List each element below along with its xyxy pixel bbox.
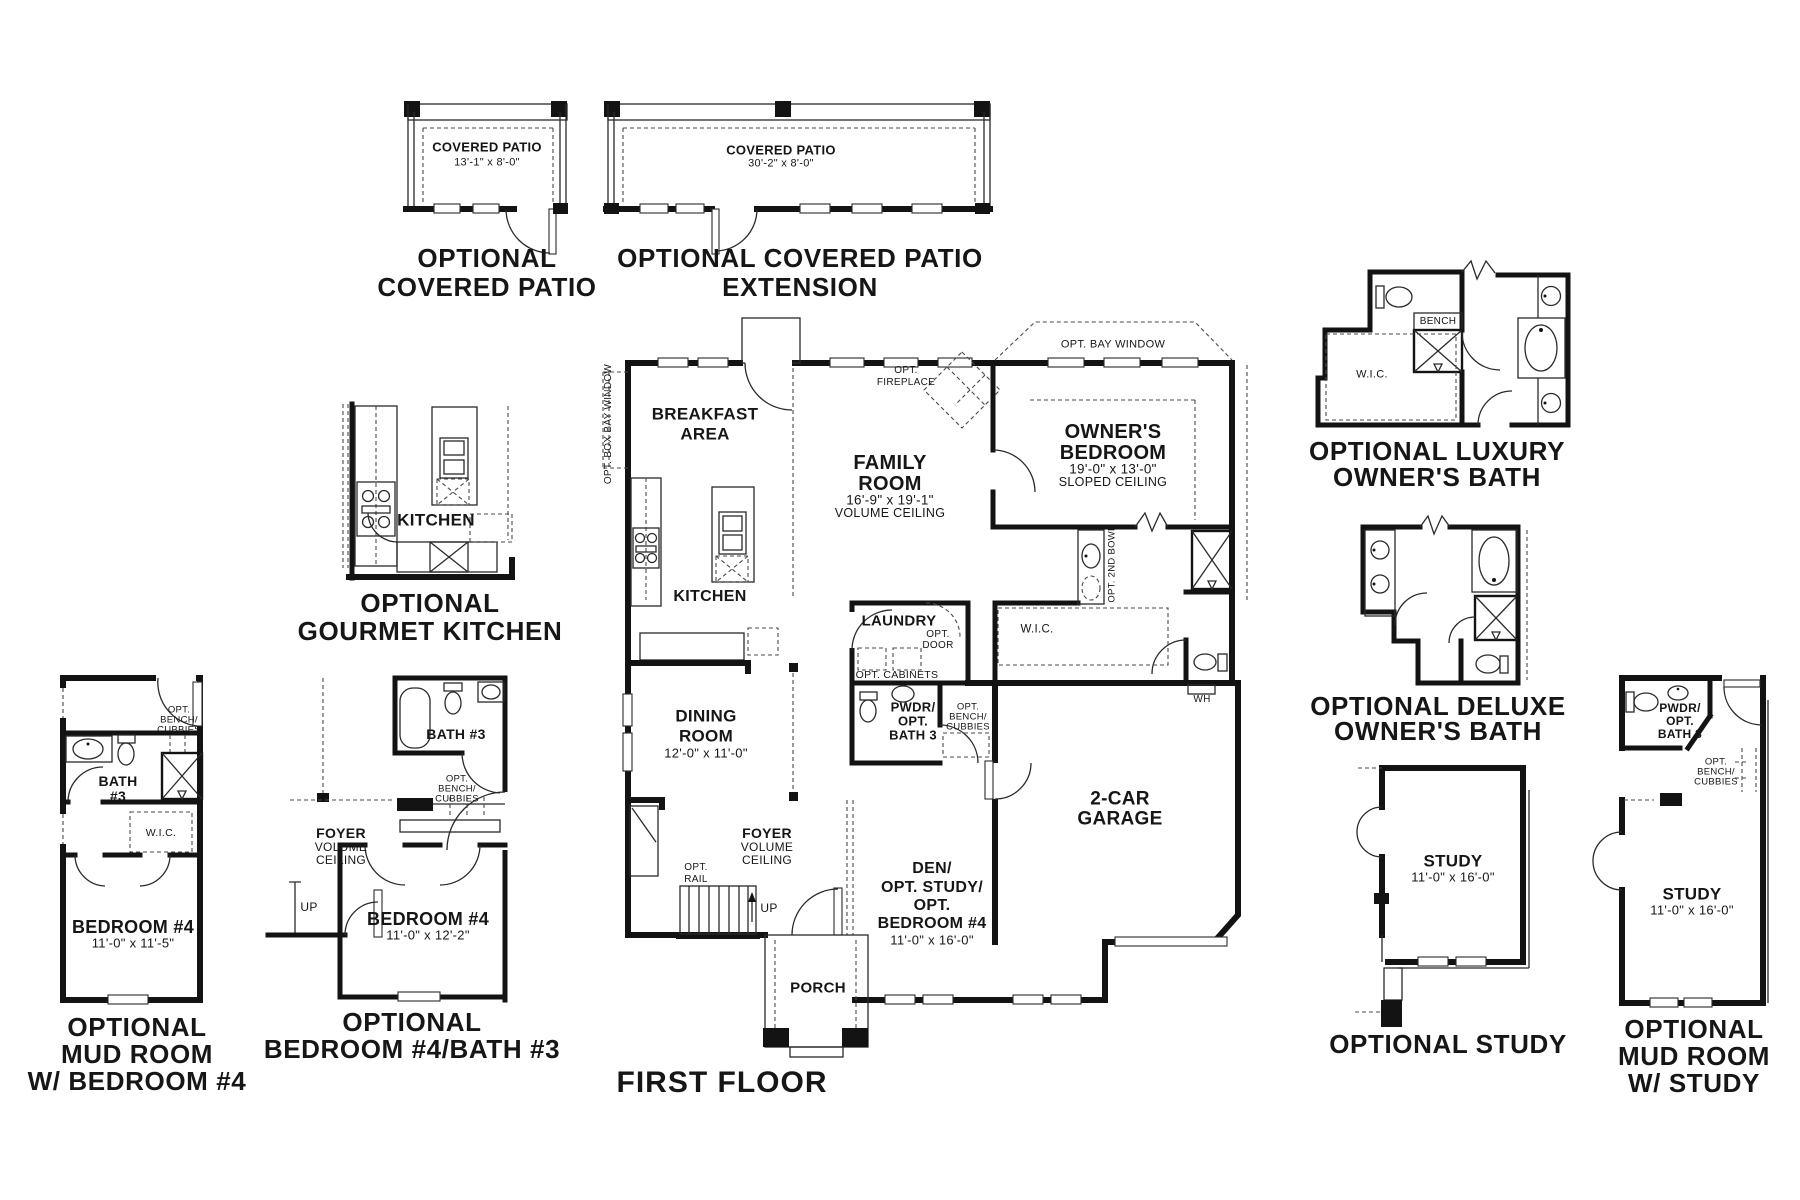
- mudbed4-wic: W.I.C.: [146, 828, 176, 839]
- main-pwdr-2: OPT.: [898, 715, 928, 728]
- main-pwdr-3: BATH 3: [889, 729, 937, 742]
- bed4bath3-bench-3: CUBBIES: [435, 794, 479, 804]
- caption-luxury-1: OPTIONAL LUXURY: [1309, 438, 1565, 464]
- floorplan-sheet: COVERED PATIO 13'-1" x 8'-0" OPTIONAL CO…: [0, 0, 1800, 1200]
- sink-icon: [1668, 686, 1688, 700]
- caption-bed4bath3-1: OPTIONAL: [342, 1009, 481, 1035]
- main-opt-rail-2: RAIL: [684, 875, 707, 885]
- main-garage-2: GARAGE: [1077, 810, 1162, 829]
- bed4bath3-up: UP: [300, 901, 317, 913]
- sink-icon: [478, 682, 504, 702]
- water-heater-icon: [1188, 685, 1215, 694]
- vanity-sink-icon: [1365, 530, 1395, 616]
- optional-covered-patio-plan: [404, 101, 568, 254]
- gourmet-kitchen-label: KITCHEN: [397, 512, 475, 529]
- covered-patio-dim: 13'-1" x 8'-0": [454, 158, 520, 169]
- bed4bath3-foyer-1: FOYER: [316, 826, 366, 840]
- main-foyer-2: VOLUME: [741, 841, 793, 853]
- caption-gourmet-2: GOURMET KITCHEN: [298, 618, 563, 644]
- bed4bath3-bedroom: BEDROOM #4: [367, 910, 489, 928]
- caption-gourmet-1: OPTIONAL: [360, 590, 499, 616]
- door-arc-icon: [745, 363, 792, 410]
- door-leaf-icon: [985, 761, 993, 799]
- main-owner-1: OWNER'S: [1065, 422, 1162, 442]
- toilet-icon: [1626, 692, 1658, 712]
- caption-patio-1: OPTIONAL: [417, 245, 556, 271]
- main-opt-cabinets: OPT. CABINETS: [856, 670, 939, 681]
- wall-break-icon: [1420, 516, 1450, 534]
- bed4bath3-bath: BATH #3: [426, 727, 485, 741]
- main-den-dim: 11'-0" x 16'-0": [890, 934, 974, 947]
- tub-icon: [1472, 530, 1517, 592]
- vanity-sink-icon: [1078, 530, 1104, 604]
- double-door-icon: [1135, 513, 1168, 531]
- mudbed4-bath-2: #3: [110, 789, 126, 803]
- caption-mudbed4-1: OPTIONAL: [67, 1014, 206, 1040]
- luxury-bench: BENCH: [1420, 317, 1457, 327]
- caption-mudstudy-2: MUD ROOM: [1618, 1043, 1770, 1069]
- shower-icon: [1192, 531, 1232, 589]
- main-den-4: BEDROOM #4: [878, 916, 987, 932]
- main-opt-door-2: DOOR: [922, 641, 953, 651]
- mudstudy-bench-3: CUBBIES: [1694, 777, 1738, 787]
- door-arc-icon: [1462, 332, 1500, 370]
- main-dining-dim: 12'-0" x 11'-0": [664, 747, 748, 760]
- stair-rail-icon: [289, 882, 301, 935]
- optional-study-plan: [1355, 768, 1529, 1027]
- caption-deluxe-2: OWNER'S BATH: [1334, 718, 1542, 744]
- caption-patio-2: COVERED PATIO: [377, 274, 596, 300]
- main-pwdr-1: PWDR/: [891, 701, 936, 714]
- mudbed4-dim: 11'-0" x 11'-5": [92, 937, 175, 950]
- shower-icon: [1414, 330, 1462, 372]
- sink-icon: [1542, 287, 1561, 413]
- main-bench-3: CUBBIES: [946, 722, 990, 732]
- main-breakfast-1: BREAKFAST: [652, 406, 759, 423]
- door-arc-icon: [1478, 391, 1512, 425]
- main-fireplace-2: FIREPLACE: [877, 378, 935, 388]
- tub-icon: [1518, 318, 1565, 378]
- caption-luxury-2: OWNER'S BATH: [1333, 464, 1541, 490]
- bed4bath3-foyer-2: VOLUME: [315, 841, 367, 853]
- wall-break-icon: [1462, 261, 1495, 279]
- mudstudy-pwdr-3: BATH 3: [1658, 728, 1702, 740]
- door-arc-icon: [440, 845, 480, 885]
- main-fireplace-1: OPT.: [894, 366, 917, 376]
- luxury-wic: W.I.C.: [1356, 370, 1388, 381]
- island-double-oven-icon: [432, 407, 477, 505]
- door-arc-icon: [1395, 593, 1427, 625]
- door-arc-icon: [995, 763, 1031, 799]
- door-arc-icon: [1724, 687, 1762, 725]
- door-leaf-icon: [834, 888, 842, 935]
- caption-mudstudy-1: OPTIONAL: [1624, 1016, 1763, 1042]
- main-foyer-3: CEILING: [742, 854, 792, 866]
- main-family-note: VOLUME CEILING: [835, 507, 945, 520]
- mudstudy-dim: 11'-0" x 16'-0": [1650, 904, 1734, 917]
- optional-covered-patio-extension-plan: [604, 101, 990, 254]
- caption-mudbed4-2: MUD ROOM: [61, 1041, 213, 1067]
- mudbed4-bath-1: BATH: [98, 774, 137, 788]
- sink-icon: [430, 542, 468, 572]
- garage-door-icon: [1115, 937, 1227, 946]
- shower-icon: [1475, 596, 1517, 640]
- main-family-dim: 16'-9" x 19'-1": [846, 493, 934, 507]
- door-arc-icon: [1357, 807, 1382, 857]
- patio-ext-label: COVERED PATIO: [726, 144, 836, 157]
- main-bay-window: OPT. BAY WINDOW: [1061, 340, 1165, 351]
- main-wh: WH: [1193, 695, 1210, 705]
- main-box-bay-window: OPT. BOX BAY WINDOW: [604, 364, 614, 484]
- door-arc-icon: [365, 845, 405, 885]
- caption-mudstudy-3: W/ STUDY: [1628, 1070, 1760, 1096]
- main-den-2: OPT. STUDY/: [881, 880, 983, 896]
- main-opt-2nd-bowl: OPT. 2ND BOWL: [1107, 525, 1117, 602]
- main-breakfast-2: AREA: [680, 426, 729, 443]
- floorplan-drawing: [0, 0, 1800, 1200]
- toilet-icon: [860, 692, 877, 722]
- caption-study: OPTIONAL STUDY: [1329, 1031, 1567, 1057]
- bed4bath3-foyer-3: CEILING: [316, 854, 366, 866]
- toilet-icon: [1376, 286, 1412, 308]
- main-porch: PORCH: [790, 981, 846, 996]
- main-dining-2: ROOM: [679, 728, 733, 745]
- main-owner-dim: 19'-0" x 13'-0": [1069, 462, 1157, 476]
- main-opt-door-1: OPT.: [926, 630, 949, 640]
- door-arc-icon: [1152, 640, 1186, 674]
- patio-ext-dim: 30'-2" x 8'-0": [748, 159, 814, 170]
- caption-patio-ext-2: EXTENSION: [722, 274, 878, 300]
- caption-first-floor: FIRST FLOOR: [617, 1068, 828, 1098]
- island-icon: [712, 487, 754, 582]
- covered-patio-label: COVERED PATIO: [432, 141, 542, 154]
- main-owner-2: BEDROOM: [1060, 443, 1167, 463]
- main-family-1: FAMILY: [853, 453, 926, 473]
- door-arc-icon: [1593, 832, 1622, 890]
- door-arc-icon: [75, 855, 105, 886]
- mudbed4-bench-3: CUBBIES: [157, 725, 201, 735]
- door-arc-icon: [993, 450, 1035, 492]
- mudstudy-pwdr-2: OPT.: [1666, 715, 1694, 727]
- bed4bath3-dim: 11'-0" x 12'-2": [386, 929, 470, 942]
- main-garage-1: 2-CAR: [1090, 790, 1150, 809]
- main-opt-rail-1: OPT.: [684, 863, 707, 873]
- toilet-icon: [1194, 654, 1227, 671]
- caption-bed4bath3-2: BEDROOM #4/BATH #3: [264, 1036, 560, 1062]
- caption-mudbed4-3: W/ BEDROOM #4: [28, 1068, 247, 1094]
- main-owner-note: SLOPED CEILING: [1059, 476, 1167, 489]
- toilet-icon: [444, 683, 462, 714]
- toilet-icon: [118, 735, 135, 765]
- door-leaf-icon: [1724, 680, 1760, 687]
- caption-patio-ext-1: OPTIONAL COVERED PATIO: [617, 245, 983, 271]
- main-foyer-1: FOYER: [742, 826, 792, 840]
- sink-icon: [66, 736, 112, 762]
- study-dim: 11'-0" x 16'-0": [1411, 871, 1495, 884]
- mudbed4-bedroom: BEDROOM #4: [72, 918, 194, 936]
- main-den-3: OPT.: [914, 898, 951, 914]
- optional-deluxe-owners-bath-plan: [1363, 516, 1527, 683]
- optional-gourmet-kitchen-plan: [343, 404, 512, 578]
- toilet-icon: [1476, 655, 1508, 673]
- door-arc-icon: [140, 855, 170, 886]
- main-laundry: LAUNDRY: [862, 614, 937, 629]
- door-arc-icon: [792, 889, 838, 935]
- main-family-2: ROOM: [858, 474, 921, 494]
- stairs-icon: [680, 886, 756, 934]
- optional-luxury-owners-bath-plan: [1318, 261, 1568, 425]
- main-up: UP: [760, 902, 777, 914]
- mudstudy-study: STUDY: [1662, 886, 1721, 903]
- main-wic: W.I.C.: [1020, 624, 1053, 636]
- mudstudy-pwdr-1: PWDR/: [1659, 702, 1701, 714]
- study-label: STUDY: [1423, 853, 1482, 870]
- main-den-1: DEN/: [912, 861, 951, 877]
- main-dining-1: DINING: [675, 708, 736, 725]
- main-kitchen: KITCHEN: [673, 589, 746, 605]
- shower-icon: [162, 753, 202, 799]
